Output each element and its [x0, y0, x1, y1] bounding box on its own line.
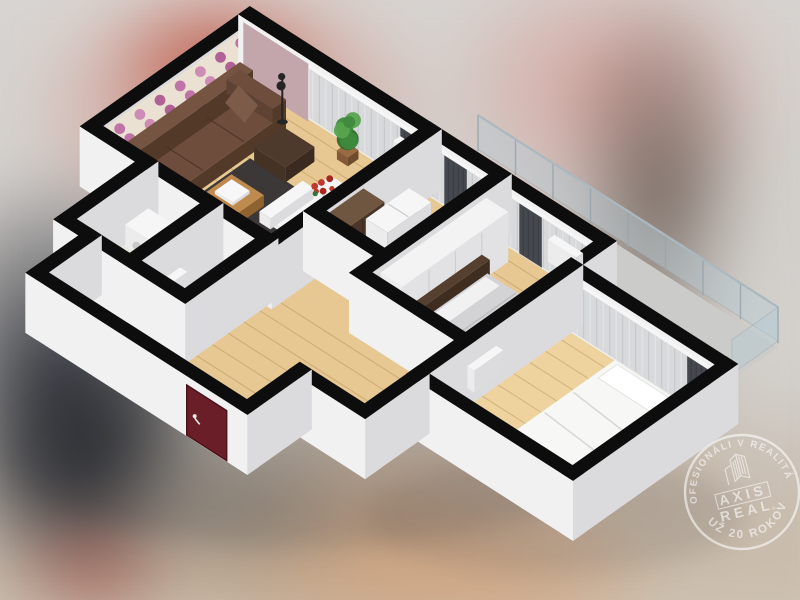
plant-foliage	[343, 116, 355, 128]
bedroom2-radiator-sw-face	[467, 366, 474, 392]
bedroom2-sw-exterior-wall-end	[573, 473, 585, 541]
red-flower	[326, 175, 333, 182]
screenshot-stage: PROFESIONÁLI V REALITÁCH UŽ 20 ROKOV AXI…	[0, 0, 800, 600]
vestibule-sw-exterior-wall-end	[247, 407, 259, 475]
floral-rose	[195, 66, 206, 77]
floral-rose	[114, 123, 125, 134]
red-flower	[318, 179, 325, 186]
red-flower	[320, 188, 327, 195]
axis-real-building-icon	[722, 452, 750, 484]
floral-rose	[135, 109, 146, 120]
door-handle	[193, 414, 197, 418]
floor-lamp-head	[278, 73, 285, 80]
flower-leaf	[313, 191, 318, 196]
floral-rose	[215, 52, 226, 63]
floor-lamp-head	[276, 81, 285, 90]
floral-rose	[155, 95, 166, 106]
watermark-stamp: PROFESIONÁLI V REALITÁCH UŽ 20 ROKOV AXI…	[656, 406, 800, 578]
bath-block-sw-exterior-wall-end	[185, 296, 197, 364]
floral-rose	[175, 81, 186, 92]
hall-east-exterior-wall-end	[353, 411, 365, 479]
red-flower	[311, 183, 318, 190]
